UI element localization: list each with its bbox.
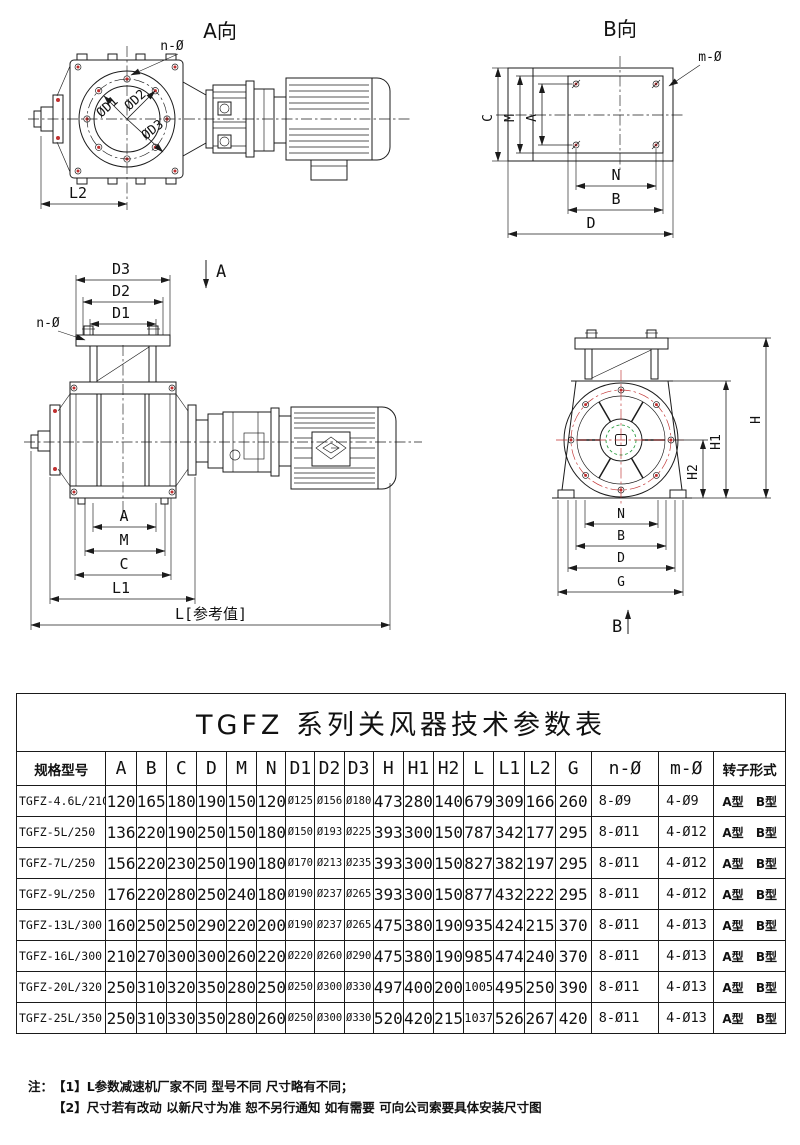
value-cell: 295 — [555, 879, 591, 910]
value-cell: 300 — [166, 941, 196, 972]
value-cell: 250 — [196, 817, 226, 848]
column-header: m-Ø — [659, 752, 714, 786]
m-dim-label: M — [503, 114, 518, 122]
spec-table: TGFZ 系列关风器技术参数表 规格型号ABCDMND1D2D3HH1H2LL1… — [16, 693, 786, 1034]
value-cell: A型 B型 — [714, 910, 786, 941]
column-header: C — [166, 752, 196, 786]
value-cell: 4-Ø13 — [659, 1003, 714, 1034]
value-cell: 4-Ø13 — [659, 941, 714, 972]
h2-dim-label: H2 — [686, 464, 701, 480]
value-cell: 270 — [136, 941, 166, 972]
value-cell: 267 — [525, 1003, 555, 1034]
column-header: D3 — [344, 752, 373, 786]
value-cell: A型 B型 — [714, 941, 786, 972]
value-cell: 220 — [136, 817, 166, 848]
value-cell: 985 — [464, 941, 494, 972]
value-cell: 120 — [257, 786, 286, 817]
value-cell: 136 — [106, 817, 136, 848]
value-cell: 230 — [166, 848, 196, 879]
value-cell: 420 — [403, 1003, 433, 1034]
value-cell: 877 — [464, 879, 494, 910]
motor — [291, 407, 396, 489]
value-cell: 190 — [227, 848, 257, 879]
table-row: TGFZ-25L/350250310330350280260Ø250Ø300Ø3… — [17, 1003, 786, 1034]
column-header: L1 — [494, 752, 525, 786]
column-header: H — [373, 752, 403, 786]
value-cell: 190 — [434, 910, 464, 941]
value-cell: 180 — [257, 848, 286, 879]
section-a-label: A — [216, 262, 226, 282]
c-dim-label: C — [119, 555, 128, 573]
view-a-drawing: A向 n-Ø — [20, 8, 420, 236]
column-header: L — [464, 752, 494, 786]
value-cell: Ø300 — [315, 972, 344, 1003]
table-row: TGFZ-5L/250136220190250150180Ø150Ø193Ø22… — [17, 817, 786, 848]
value-cell: 280 — [166, 879, 196, 910]
value-cell: 240 — [525, 941, 555, 972]
d-dim-label: D — [586, 214, 595, 232]
value-cell: 215 — [525, 910, 555, 941]
d3-dim-label: D3 — [112, 260, 130, 278]
model-cell: TGFZ-16L/300 — [17, 941, 106, 972]
value-cell: 4-Ø13 — [659, 972, 714, 1003]
value-cell: 8-Ø11 — [591, 972, 658, 1003]
value-cell: 400 — [403, 972, 433, 1003]
value-cell: 300 — [403, 879, 433, 910]
g-dim-label: G — [617, 575, 625, 590]
value-cell: Ø170 — [286, 848, 315, 879]
value-cell: 215 — [434, 1003, 464, 1034]
value-cell: 120 — [106, 786, 136, 817]
model-cell: TGFZ-13L/300 — [17, 910, 106, 941]
value-cell: 140 — [434, 786, 464, 817]
value-cell: Ø250 — [286, 972, 315, 1003]
value-cell: A型 B型 — [714, 817, 786, 848]
value-cell: 295 — [555, 817, 591, 848]
h-dim-label: H — [749, 416, 764, 424]
value-cell: 250 — [106, 972, 136, 1003]
params-table-body: TGFZ-4.6L/210120165180190150120Ø125Ø156Ø… — [17, 786, 786, 1034]
value-cell: Ø250 — [286, 1003, 315, 1034]
value-cell: 260 — [257, 1003, 286, 1034]
end-view-drawing: H2 H1 H N B D G — [528, 300, 800, 645]
value-cell: 220 — [227, 910, 257, 941]
note-line: 【2】尺寸若有改动 以新尺寸为准 恕不另行通知 如有需要 可向公司索要具体安装尺… — [53, 1097, 542, 1118]
value-cell: 300 — [196, 941, 226, 972]
dimension-d: D — [508, 161, 673, 238]
column-header: 转子形式 — [714, 752, 786, 786]
value-cell: 393 — [373, 848, 403, 879]
column-header: 规格型号 — [17, 752, 106, 786]
value-cell: 679 — [464, 786, 494, 817]
column-header: L2 — [525, 752, 555, 786]
model-cell: TGFZ-20L/320 — [17, 972, 106, 1003]
footnotes: 注： 【1】L参数减速机厂家不同 型号不同 尺寸略有不同； 【2】尺寸若有改动 … — [28, 1076, 542, 1118]
value-cell: 787 — [464, 817, 494, 848]
b-dim-label: B — [611, 190, 620, 208]
value-cell: 393 — [373, 879, 403, 910]
value-cell: 197 — [525, 848, 555, 879]
l-ref-dim-label: L[参考值] — [175, 605, 247, 623]
value-cell: 250 — [525, 972, 555, 1003]
view-a-title: A向 — [203, 19, 237, 43]
value-cell: Ø125 — [286, 786, 315, 817]
column-header: N — [257, 752, 286, 786]
column-header: n-Ø — [591, 752, 658, 786]
value-cell: 180 — [257, 817, 286, 848]
value-cell: 4-Ø12 — [659, 848, 714, 879]
value-cell: 300 — [403, 848, 433, 879]
value-cell: 177 — [525, 817, 555, 848]
value-cell: 150 — [434, 817, 464, 848]
value-cell: Ø330 — [344, 1003, 373, 1034]
value-cell: 190 — [166, 817, 196, 848]
value-cell: Ø260 — [315, 941, 344, 972]
value-cell: 4-Ø13 — [659, 910, 714, 941]
dimension-a: A — [93, 503, 156, 532]
value-cell: 382 — [494, 848, 525, 879]
note-line: 【1】L参数减速机厂家不同 型号不同 尺寸略有不同； — [53, 1076, 542, 1097]
d3-diameter-label: ØD3 — [139, 117, 167, 143]
m-hole-label: m-Ø — [698, 50, 722, 65]
value-cell: 260 — [227, 941, 257, 972]
value-cell: 295 — [555, 848, 591, 879]
value-cell: 166 — [525, 786, 555, 817]
column-header: A — [106, 752, 136, 786]
value-cell: 827 — [464, 848, 494, 879]
value-cell: 250 — [106, 1003, 136, 1034]
view-b-title: B向 — [603, 17, 637, 41]
value-cell: 4-Ø9 — [659, 786, 714, 817]
value-cell: Ø156 — [315, 786, 344, 817]
value-cell: 220 — [257, 941, 286, 972]
value-cell: 150 — [434, 879, 464, 910]
table-row: TGFZ-13L/300160250250290220200Ø190Ø237Ø2… — [17, 910, 786, 941]
dimension-n: N — [576, 149, 656, 190]
section-b-marker: B — [612, 610, 628, 637]
b-dim-label: B — [617, 529, 625, 544]
value-cell: 350 — [196, 972, 226, 1003]
value-cell: 250 — [136, 910, 166, 941]
value-cell: 310 — [136, 1003, 166, 1034]
value-cell: 220 — [136, 879, 166, 910]
value-cell: A型 B型 — [714, 879, 786, 910]
value-cell: 165 — [136, 786, 166, 817]
column-header: D1 — [286, 752, 315, 786]
section-b-label: B — [612, 617, 622, 637]
c-dim-label: C — [481, 114, 496, 122]
value-cell: 309 — [494, 786, 525, 817]
model-cell: TGFZ-25L/350 — [17, 1003, 106, 1034]
value-cell: 475 — [373, 910, 403, 941]
rotor — [556, 370, 686, 506]
value-cell: 8-Ø9 — [591, 786, 658, 817]
value-cell: 250 — [257, 972, 286, 1003]
corner-bolt-holes — [572, 80, 660, 149]
value-cell: 330 — [166, 1003, 196, 1034]
value-cell: Ø213 — [315, 848, 344, 879]
value-cell: 180 — [166, 786, 196, 817]
n-dim-label: N — [617, 507, 625, 522]
table-title: TGFZ 系列关风器技术参数表 — [17, 694, 786, 752]
l1-dim-label: L1 — [112, 579, 130, 597]
column-header: D2 — [315, 752, 344, 786]
dimension-d1: D1 — [90, 304, 156, 335]
value-cell: 370 — [555, 941, 591, 972]
value-cell: A型 B型 — [714, 972, 786, 1003]
value-cell: 424 — [494, 910, 525, 941]
value-cell: 250 — [166, 910, 196, 941]
value-cell: Ø290 — [344, 941, 373, 972]
d1-diameter-label: ØD1 — [94, 94, 121, 121]
value-cell: 497 — [373, 972, 403, 1003]
value-cell: 280 — [227, 1003, 257, 1034]
column-header: B — [136, 752, 166, 786]
d1-dim-label: D1 — [112, 304, 130, 322]
value-cell: Ø193 — [315, 817, 344, 848]
value-cell: 520 — [373, 1003, 403, 1034]
value-cell: Ø300 — [315, 1003, 344, 1034]
value-cell: 220 — [136, 848, 166, 879]
table-header-row: 规格型号ABCDMND1D2D3HH1H2LL1L2Gn-Øm-Ø转子形式 — [17, 752, 786, 786]
value-cell: 935 — [464, 910, 494, 941]
value-cell: Ø265 — [344, 910, 373, 941]
value-cell: 8-Ø11 — [591, 817, 658, 848]
value-cell: 250 — [196, 879, 226, 910]
dimension-a: A — [525, 84, 572, 145]
value-cell: Ø265 — [344, 879, 373, 910]
value-cell: 280 — [227, 972, 257, 1003]
value-cell: 8-Ø11 — [591, 1003, 658, 1034]
model-cell: TGFZ-5L/250 — [17, 817, 106, 848]
inlet-flange — [575, 330, 668, 379]
value-cell: 310 — [136, 972, 166, 1003]
value-cell: Ø180 — [344, 786, 373, 817]
value-cell: 420 — [555, 1003, 591, 1034]
value-cell: 432 — [494, 879, 525, 910]
value-cell: 290 — [196, 910, 226, 941]
table-row: TGFZ-7L/250156220230250190180Ø170Ø213Ø23… — [17, 848, 786, 879]
value-cell: 222 — [525, 879, 555, 910]
table-row: TGFZ-20L/320250310320350280250Ø250Ø300Ø3… — [17, 972, 786, 1003]
value-cell: A型 B型 — [714, 1003, 786, 1034]
h1-dim-label: H1 — [709, 434, 724, 450]
n-hole-label: n-Ø — [160, 39, 184, 54]
d2-dim-label: D2 — [112, 282, 130, 300]
value-cell: 320 — [166, 972, 196, 1003]
value-cell: 1005 — [464, 972, 494, 1003]
value-cell: A型 B型 — [714, 848, 786, 879]
value-cell: Ø190 — [286, 879, 315, 910]
value-cell: 390 — [555, 972, 591, 1003]
value-cell: 8-Ø11 — [591, 941, 658, 972]
value-cell: 150 — [227, 817, 257, 848]
value-cell: 8-Ø11 — [591, 879, 658, 910]
value-cell: 160 — [106, 910, 136, 941]
value-cell: Ø330 — [344, 972, 373, 1003]
value-cell: 473 — [373, 786, 403, 817]
value-cell: 350 — [196, 1003, 226, 1034]
dimension-n: N — [585, 500, 658, 528]
value-cell: 495 — [494, 972, 525, 1003]
value-cell: 380 — [403, 910, 433, 941]
model-cell: TGFZ-7L/250 — [17, 848, 106, 879]
value-cell: 250 — [196, 848, 226, 879]
value-cell: 150 — [434, 848, 464, 879]
a-dim-label: A — [525, 114, 540, 122]
n-dim-label: N — [611, 166, 620, 184]
column-header: D — [196, 752, 226, 786]
value-cell: 342 — [494, 817, 525, 848]
dimension-h: H — [668, 338, 771, 498]
value-cell: A型 B型 — [714, 786, 786, 817]
value-cell: 260 — [555, 786, 591, 817]
value-cell: 156 — [106, 848, 136, 879]
value-cell: 475 — [373, 941, 403, 972]
value-cell: 1037 — [464, 1003, 494, 1034]
motor — [286, 78, 390, 180]
value-cell: Ø150 — [286, 817, 315, 848]
value-cell: 526 — [494, 1003, 525, 1034]
value-cell: 8-Ø11 — [591, 910, 658, 941]
model-cell: TGFZ-4.6L/210 — [17, 786, 106, 817]
spec-sheet-page: A向 n-Ø — [0, 0, 800, 1145]
value-cell: 370 — [555, 910, 591, 941]
dimension-l2: L2 — [41, 136, 127, 209]
value-cell: Ø237 — [315, 879, 344, 910]
value-cell: 200 — [434, 972, 464, 1003]
l2-dim-label: L2 — [69, 184, 87, 202]
column-header: G — [555, 752, 591, 786]
value-cell: 210 — [106, 941, 136, 972]
value-cell: Ø225 — [344, 817, 373, 848]
value-cell: Ø190 — [286, 910, 315, 941]
column-header: M — [227, 752, 257, 786]
section-a-marker: A — [206, 260, 226, 288]
column-header: H1 — [403, 752, 433, 786]
m-dim-label: M — [119, 531, 128, 549]
value-cell: 240 — [227, 879, 257, 910]
a-dim-label: A — [119, 507, 128, 525]
table-row: TGFZ-9L/250176220280250240180Ø190Ø237Ø26… — [17, 879, 786, 910]
value-cell: 190 — [434, 941, 464, 972]
table-row: TGFZ-4.6L/210120165180190150120Ø125Ø156Ø… — [17, 786, 786, 817]
value-cell: 380 — [403, 941, 433, 972]
gearbox — [176, 394, 291, 486]
value-cell: Ø237 — [315, 910, 344, 941]
d-dim-label: D — [617, 551, 625, 566]
value-cell: 200 — [257, 910, 286, 941]
model-cell: TGFZ-9L/250 — [17, 879, 106, 910]
value-cell: Ø235 — [344, 848, 373, 879]
value-cell: 474 — [494, 941, 525, 972]
value-cell: 300 — [403, 817, 433, 848]
value-cell: 4-Ø12 — [659, 879, 714, 910]
value-cell: 180 — [257, 879, 286, 910]
value-cell: 4-Ø12 — [659, 817, 714, 848]
front-view-drawing: D3 D2 D1 A n-Ø — [18, 255, 442, 647]
table-row: TGFZ-16L/300210270300300260220Ø220Ø260Ø2… — [17, 941, 786, 972]
dimension-h1: H1 — [673, 381, 731, 498]
value-cell: 190 — [196, 786, 226, 817]
column-header: H2 — [434, 752, 464, 786]
value-cell: 393 — [373, 817, 403, 848]
value-cell: 8-Ø11 — [591, 848, 658, 879]
n-hole-label: n-Ø — [36, 316, 60, 331]
view-b-drawing: B向 m-Ø C M — [468, 8, 790, 260]
value-cell: Ø220 — [286, 941, 315, 972]
value-cell: 280 — [403, 786, 433, 817]
shaft-end — [31, 394, 70, 486]
notes-prefix: 注： — [28, 1076, 53, 1118]
value-cell: 176 — [106, 879, 136, 910]
value-cell: 150 — [227, 786, 257, 817]
